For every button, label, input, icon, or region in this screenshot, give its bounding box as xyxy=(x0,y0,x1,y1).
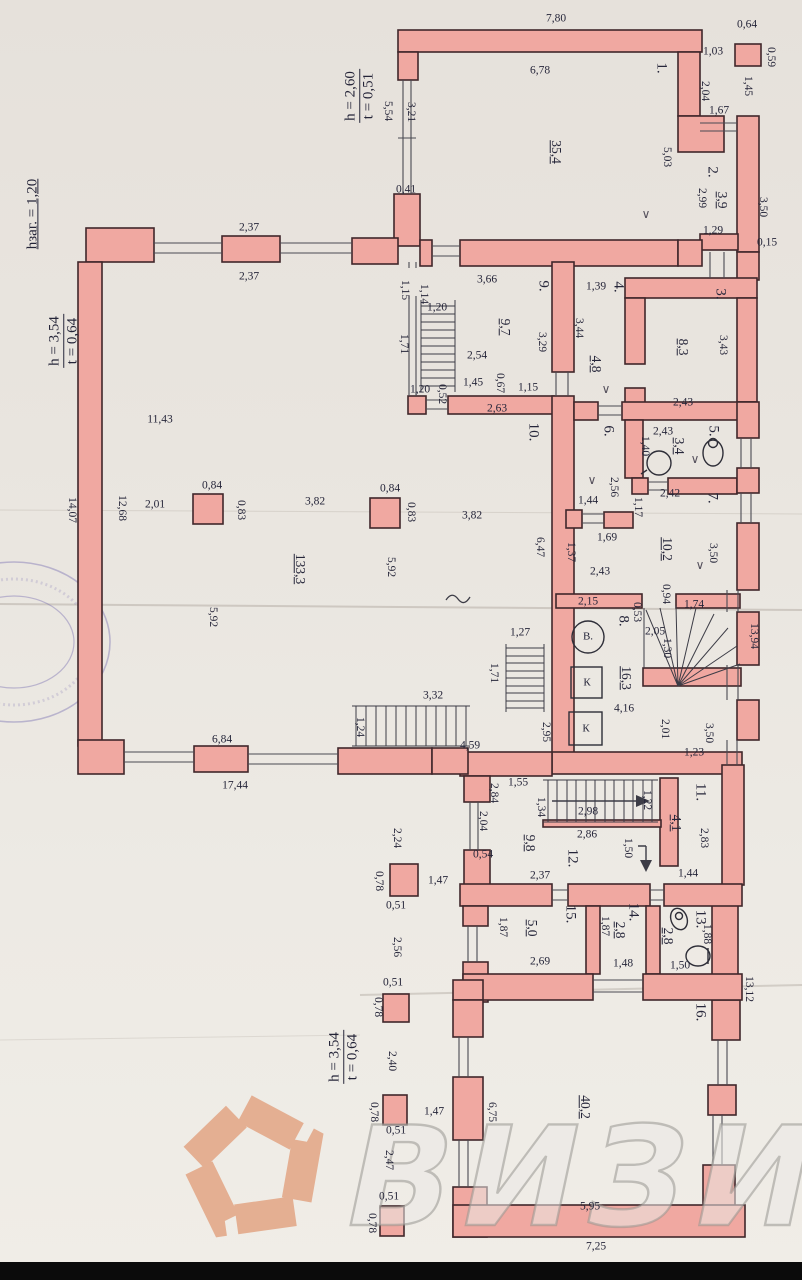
dimension-label: 2,40 xyxy=(385,1051,397,1071)
dimension-label: 2,86 xyxy=(577,829,597,841)
dimension-label: 1,03 xyxy=(703,46,723,58)
room-area-label: 3,4 xyxy=(672,438,686,455)
dimension-label: 5,92 xyxy=(206,607,218,627)
dimension-label: 2,47 xyxy=(382,1150,394,1170)
dimension-label: 1,40 xyxy=(638,436,650,456)
room-number-label: 11. xyxy=(693,783,708,801)
dimension-label: 4,59 xyxy=(460,740,480,752)
dimension-label: 2,04 xyxy=(476,811,488,831)
height-note: h = 3,54t = 0,64 xyxy=(46,314,82,368)
dimension-label: 2,42 xyxy=(660,488,680,500)
dimension-label: 1,23 xyxy=(684,747,704,759)
dimension-label: 1,48 xyxy=(613,958,633,970)
dimension-label: 1,15 xyxy=(398,280,410,300)
dimension-label: 1,69 xyxy=(597,532,617,544)
room-number-label: 10. xyxy=(526,423,541,442)
dimension-label: 1,44 xyxy=(678,868,698,880)
dimension-label: 0,59 xyxy=(764,47,776,67)
dimension-label: 0,67 xyxy=(493,373,505,393)
dimension-label: 2,04 xyxy=(698,81,710,101)
dimension-label: 0,54 xyxy=(473,849,493,861)
dimension-label: 2,99 xyxy=(695,188,707,208)
dimension-label: 1,50 xyxy=(670,960,690,972)
room-number-label: 16. xyxy=(693,1003,708,1022)
dimension-label: 1,44 xyxy=(578,495,598,507)
room-area-label: 9,8 xyxy=(523,835,537,852)
dimension-label: 7,25 xyxy=(586,1241,606,1253)
room-area-label: 2,8 xyxy=(661,928,675,945)
dimension-label: 1,55 xyxy=(508,777,528,789)
dimension-label: 1,30 xyxy=(660,638,672,658)
dimension-label: 0,83 xyxy=(234,500,246,520)
room-number-label: 5. xyxy=(706,425,721,436)
door-mark: ∨ xyxy=(696,559,705,571)
room-area-label: 4,8 xyxy=(589,356,603,373)
dimension-label: 14,07 xyxy=(65,497,77,523)
fixture-label: К xyxy=(583,678,590,689)
room-area-label: 40,2 xyxy=(578,1095,592,1119)
floor-plan-page: ВИЗИТ 7,800,640,591,031,452,046,781.5,54… xyxy=(0,0,802,1280)
dimension-label: 0,51 xyxy=(386,900,406,912)
door-mark: ∨ xyxy=(691,453,700,465)
dimension-label: 2,84 xyxy=(487,783,499,803)
dimension-label: 2,37 xyxy=(239,271,259,283)
dimension-label: 2,43 xyxy=(653,426,673,438)
height-note: h = 2,60t = 0,51 xyxy=(342,69,378,123)
dimension-label: 0,78 xyxy=(372,871,384,891)
room-number-label: 4. xyxy=(611,281,626,292)
dimension-label: 0,84 xyxy=(202,480,222,492)
dimension-label: 0,53 xyxy=(630,602,642,622)
dimension-label: 5,92 xyxy=(384,557,396,577)
labels-layer: 7,800,640,591,031,452,046,781.5,543,2135… xyxy=(0,0,802,1280)
dimension-label: 17,44 xyxy=(222,780,248,792)
dimension-label: 3,29 xyxy=(535,332,547,352)
room-area-label: 16,3 xyxy=(619,666,633,690)
dimension-label: 2,83 xyxy=(697,828,709,848)
dimension-label: 2,15 xyxy=(578,596,598,608)
room-area-label: 9,7 xyxy=(498,319,512,336)
room-area-label: 4,1 xyxy=(669,815,683,832)
room-number-label: 3. xyxy=(713,288,728,299)
dimension-label: 1,71 xyxy=(487,663,499,683)
dimension-label: 2,24 xyxy=(390,828,402,848)
dimension-label: 5,03 xyxy=(660,147,672,167)
room-number-label: 7. xyxy=(705,492,720,503)
dimension-label: 1,50 xyxy=(621,838,633,858)
room-area-label: 8,3 xyxy=(676,339,690,356)
dimension-label: 3,82 xyxy=(462,510,482,522)
dimension-label: 2,01 xyxy=(658,719,670,739)
dimension-label: 13,12 xyxy=(742,976,754,1002)
fixture-label: В. xyxy=(583,632,593,643)
dimension-label: 0,15 xyxy=(757,237,777,249)
dimension-label: 1,47 xyxy=(428,875,448,887)
dimension-label: 3,43 xyxy=(716,335,728,355)
dimension-label: 0,52 xyxy=(435,384,447,404)
dimension-label: 0,78 xyxy=(371,997,383,1017)
dimension-label: 0,84 xyxy=(380,483,400,495)
dimension-label: 1,45 xyxy=(463,377,483,389)
dimension-label: 2,54 xyxy=(467,350,487,362)
dimension-label: 6,84 xyxy=(212,734,232,746)
dimension-label: 6,78 xyxy=(530,65,550,77)
dimension-label: 12,68 xyxy=(115,495,127,521)
dimension-label: 1,87 xyxy=(496,917,508,937)
dimension-label: 0,41 xyxy=(396,184,416,196)
dimension-label: 5,54 xyxy=(381,101,393,121)
dimension-label: 2,43 xyxy=(673,397,693,409)
dimension-label: 0,51 xyxy=(386,1125,406,1137)
room-number-label: 15. xyxy=(563,905,578,924)
dimension-label: 0,78 xyxy=(365,1213,377,1233)
dimension-label: 3,44 xyxy=(572,318,584,338)
dimension-label: 2,56 xyxy=(607,477,619,497)
dimension-label: 1,45 xyxy=(741,76,753,96)
dimension-label: 1,34 xyxy=(534,797,546,817)
door-mark: ∨ xyxy=(588,474,597,486)
dimension-label: 2,43 xyxy=(590,566,610,578)
fixture-label: К xyxy=(582,724,589,735)
room-number-label: 6. xyxy=(601,425,616,436)
room-number-label: 8. xyxy=(616,615,631,626)
room-area-label: 2,8 xyxy=(613,922,627,939)
dimension-label: 1,39 xyxy=(586,281,606,293)
dimension-label: 4,16 xyxy=(614,703,634,715)
door-mark: ∨ xyxy=(642,208,651,220)
dimension-label: 2,98 xyxy=(578,806,598,818)
dimension-label: 1,20 xyxy=(427,302,447,314)
dimension-label: 1,15 xyxy=(518,382,538,394)
dimension-label: 6,75 xyxy=(485,1102,497,1122)
dimension-label: 3,50 xyxy=(706,543,718,563)
dimension-label: 3,50 xyxy=(756,197,768,217)
dimension-label: 1,17 xyxy=(631,497,643,517)
room-area-label: 3,9 xyxy=(715,192,729,209)
height-note: h = 3,54t = 0,64 xyxy=(326,1030,362,1084)
dimension-label: 1,20 xyxy=(410,384,430,396)
dimension-label: 0,94 xyxy=(659,584,671,604)
dimension-label: 0,64 xyxy=(737,19,757,31)
dimension-label: 2,95 xyxy=(539,722,551,742)
room-number-label: 1. xyxy=(654,62,669,73)
dimension-label: 3,82 xyxy=(305,496,325,508)
dimension-label: 2,37 xyxy=(239,222,259,234)
dimension-label: 5,95 xyxy=(580,1201,600,1213)
dimension-label: 2,01 xyxy=(145,499,165,511)
dimension-label: 0,51 xyxy=(383,977,403,989)
dimension-label: 1,87 xyxy=(598,916,610,936)
room-area-label: 35,4 xyxy=(549,140,563,164)
dimension-label: 7,80 xyxy=(546,13,566,25)
room-area-label: 5,0 xyxy=(525,920,539,937)
room-area-label: 10,2 xyxy=(660,537,674,561)
dimension-label: 2,37 xyxy=(530,870,550,882)
height-note: hзаг. = 1,20 xyxy=(24,177,41,252)
dimension-label: 2,63 xyxy=(487,403,507,415)
dimension-label: 3,21 xyxy=(404,102,416,122)
dimension-label: 0,78 xyxy=(367,1102,379,1122)
dimension-label: 1,74 xyxy=(684,599,704,611)
dimension-label: 2,05 xyxy=(645,626,665,638)
dimension-label: 1,71 xyxy=(397,334,409,354)
photo-bottom-edge xyxy=(0,1262,802,1280)
dimension-label: 1,67 xyxy=(709,105,729,117)
dimension-label: 3,50 xyxy=(702,723,714,743)
dimension-label: 3,66 xyxy=(477,274,497,286)
room-number-label: 14. xyxy=(626,903,641,922)
dimension-label: 1,27 xyxy=(510,627,530,639)
dimension-label: 2,69 xyxy=(530,956,550,968)
dimension-label: 1,47 xyxy=(424,1106,444,1118)
dimension-label: 6,47 xyxy=(533,537,545,557)
dimension-label: 1,22 xyxy=(640,790,652,810)
dimension-label: 1,29 xyxy=(703,225,723,237)
dimension-label: 2,56 xyxy=(390,937,402,957)
room-number-label: 12. xyxy=(565,849,580,868)
room-number-label: 2. xyxy=(705,166,720,177)
room-number-label: 9. xyxy=(536,280,551,291)
dimension-label: 1,88 xyxy=(700,924,712,944)
dimension-label: 1,24 xyxy=(353,717,365,737)
room-area-label: 133,3 xyxy=(293,554,307,584)
dimension-label: 11,43 xyxy=(147,414,172,426)
door-mark: ∨ xyxy=(602,383,611,395)
dimension-label: 3,32 xyxy=(423,690,443,702)
dimension-label: 0,83 xyxy=(404,502,416,522)
dimension-label: 0,51 xyxy=(379,1191,399,1203)
dimension-label: 13,94 xyxy=(747,623,759,649)
dimension-label: 1,37 xyxy=(564,542,576,562)
